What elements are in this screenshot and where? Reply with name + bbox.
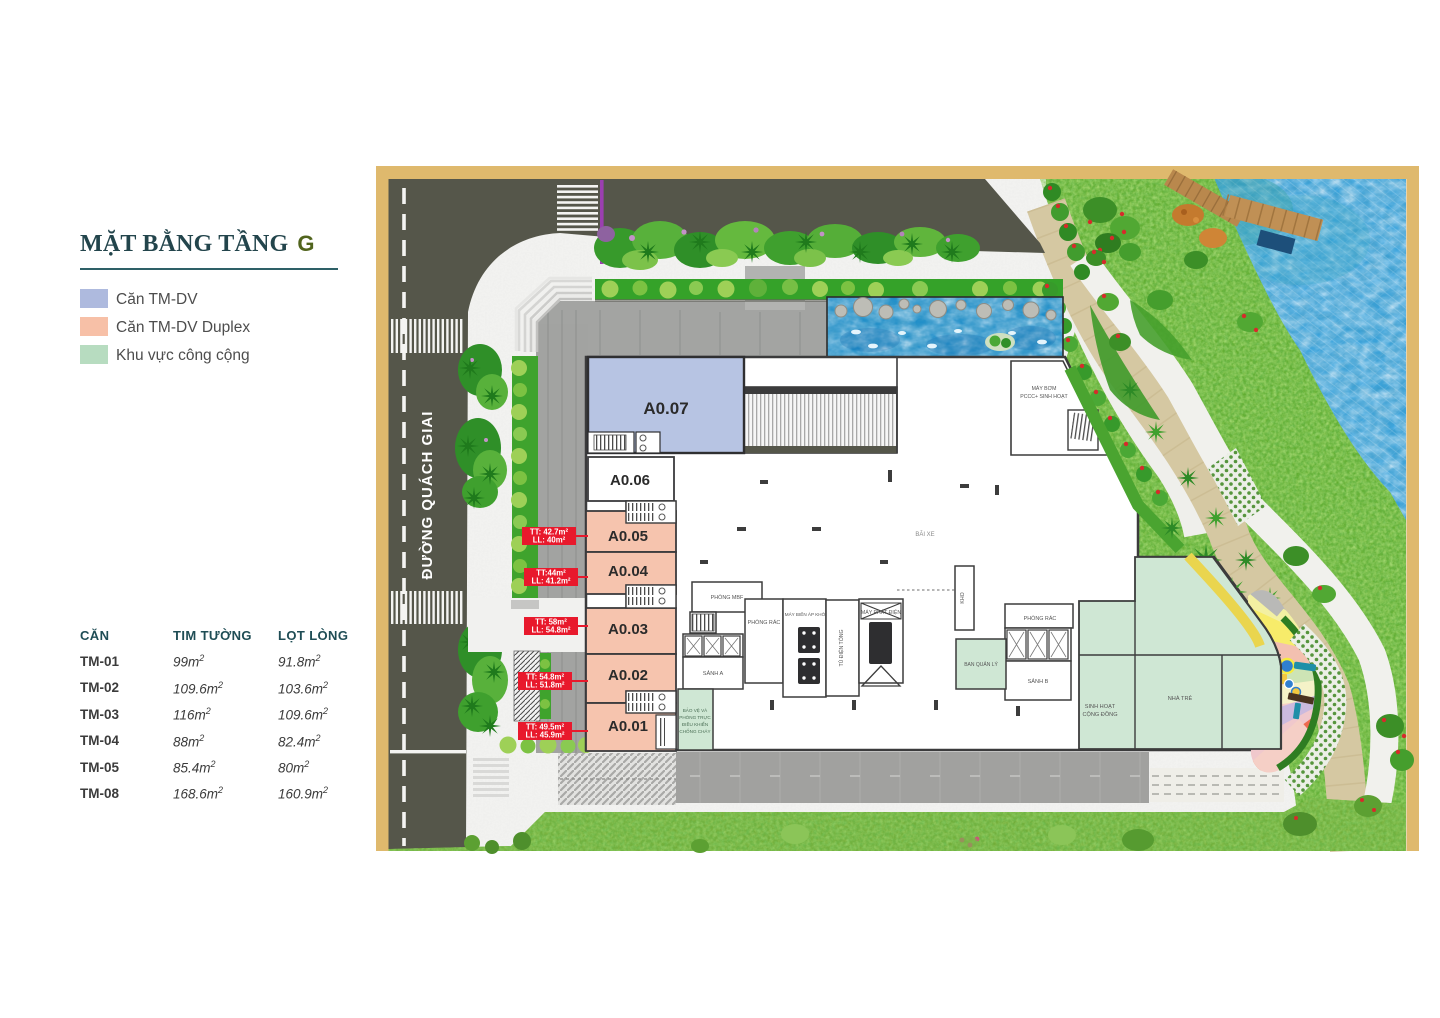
svg-text:LL: 45.9m²: LL: 45.9m²	[526, 731, 565, 740]
svg-text:BÃI XE: BÃI XE	[915, 531, 934, 538]
svg-text:SẢNH B: SẢNH B	[1028, 678, 1049, 685]
svg-text:BẢO VỆ VÀ: BẢO VỆ VÀ	[683, 706, 708, 713]
svg-text:CHỐNG CHÁY: CHỐNG CHÁY	[679, 728, 710, 734]
svg-text:PHÒNG MBF: PHÒNG MBF	[711, 594, 744, 601]
svg-text:A0.04: A0.04	[608, 563, 649, 580]
svg-text:NHÀ TRẺ: NHÀ TRẺ	[1168, 695, 1193, 702]
svg-text:A0.01: A0.01	[608, 718, 648, 735]
svg-text:MÁY PHÁT ĐIỆN: MÁY PHÁT ĐIỆN	[861, 608, 901, 616]
svg-text:ĐƯỜNG QUÁCH GIAI: ĐƯỜNG QUÁCH GIAI	[418, 411, 436, 580]
svg-text:PHÒNG RÁC: PHÒNG RÁC	[748, 619, 781, 626]
svg-text:A0.06: A0.06	[610, 472, 650, 489]
svg-text:BAN QUẢN LÝ: BAN QUẢN LÝ	[964, 661, 998, 668]
svg-text:LL: 54.8m²: LL: 54.8m²	[532, 626, 571, 635]
svg-text:TỦ ĐIỆN TỔNG: TỦ ĐIỆN TỔNG	[837, 629, 845, 666]
svg-text:MÁY BIẾN ÁP KHÔ: MÁY BIẾN ÁP KHÔ	[785, 611, 826, 617]
svg-text:LL: 40m²: LL: 40m²	[533, 536, 566, 545]
svg-text:PCCC+ SINH HOẠT: PCCC+ SINH HOẠT	[1020, 394, 1068, 400]
svg-text:A0.02: A0.02	[608, 667, 648, 684]
svg-text:PHÒNG TRỰC: PHÒNG TRỰC	[679, 714, 711, 720]
svg-text:LL: 51.8m²: LL: 51.8m²	[526, 681, 565, 690]
svg-text:MÁY BƠM: MÁY BƠM	[1032, 385, 1057, 392]
svg-text:ĐIỀU KHIỂN: ĐIỀU KHIỂN	[682, 721, 708, 727]
svg-text:A0.05: A0.05	[608, 528, 648, 545]
svg-text:LL: 41.2m²: LL: 41.2m²	[532, 577, 571, 586]
svg-text:SẢNH A: SẢNH A	[703, 670, 724, 677]
svg-text:CỘNG ĐỒNG: CỘNG ĐỒNG	[1082, 711, 1117, 718]
svg-text:PHÒNG RÁC: PHÒNG RÁC	[1024, 615, 1057, 622]
svg-text:A0.03: A0.03	[608, 621, 648, 638]
svg-text:A0.07: A0.07	[643, 399, 688, 418]
svg-text:SINH HOẠT: SINH HOẠT	[1085, 704, 1116, 710]
svg-text:KHO: KHO	[960, 592, 966, 603]
